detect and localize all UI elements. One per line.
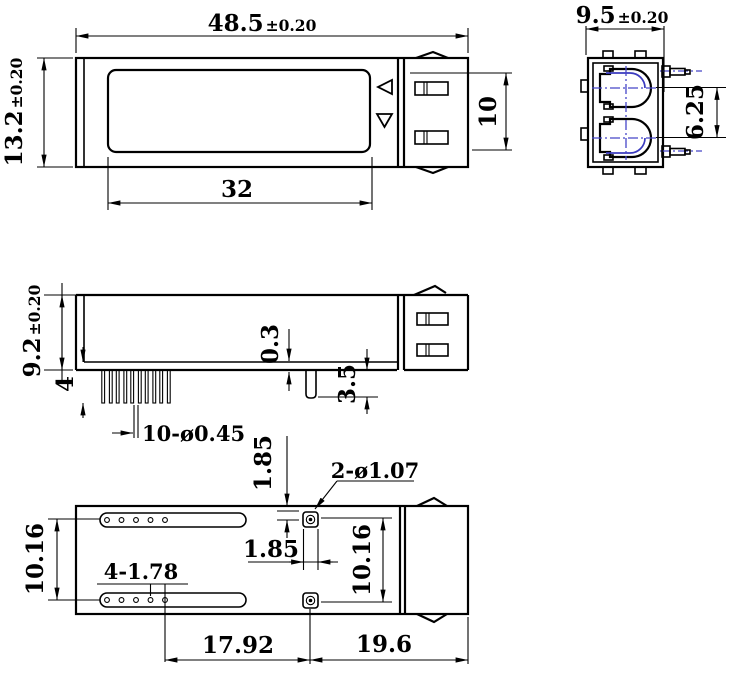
dim-slot-pitch: 10.16	[22, 519, 100, 600]
dim-standoff: 0.3	[257, 324, 289, 391]
top-slot-1	[415, 82, 448, 95]
dim-label-width-text: 32	[221, 176, 253, 203]
dim-overall-length: 48.5±0.20	[76, 10, 468, 53]
dim-overall-height: 13.2±0.20	[1, 57, 73, 167]
dim-connector-width-text: 10	[475, 96, 502, 128]
bottom-view: 10.16 4-1.78 2-ø1.07 1.85	[22, 435, 468, 664]
dim-pad-x: 17.92	[165, 609, 310, 664]
dim-pad-offset-h: 1.85	[243, 529, 338, 570]
dim-label-width: 32	[108, 157, 372, 210]
dim-slot-pitch-text: 10.16	[22, 523, 49, 595]
dim-pad-x-text: 17.92	[202, 632, 274, 659]
dim-connector-length: 19.6	[310, 617, 468, 664]
side-view: 9.2±0.20 4 10-ø0.45 0.3 3.5	[19, 283, 468, 446]
end-view: 9.5±0.20 6.25	[576, 2, 726, 174]
dim-port-pitch: 6.25	[656, 84, 726, 140]
side-slot-1	[417, 313, 448, 325]
bottom-latch-lower	[417, 614, 447, 622]
note-pins: 10-ø0.45	[112, 405, 245, 446]
top-view: 48.5±0.20 13.2±0.20 32 10	[1, 10, 512, 210]
bottom-slot-1	[100, 513, 246, 527]
dim-connector-width: 10	[410, 73, 512, 150]
dim-end-width-text: 9.5±0.20	[576, 2, 669, 29]
slot-1-holes	[105, 518, 168, 523]
pad-top	[303, 512, 318, 527]
dim-side-height: 9.2±0.20	[19, 283, 84, 382]
top-body-outline	[76, 58, 468, 167]
note-pads: 2-ø1.07	[315, 458, 419, 509]
bottom-latch-upper	[417, 498, 447, 506]
top-slot-2	[415, 131, 448, 144]
note-pads-text: 2-ø1.07	[331, 458, 419, 483]
dim-overall-length-text: 48.5±0.20	[208, 10, 317, 37]
dim-end-width: 9.5±0.20	[576, 2, 669, 92]
triangle-down-icon	[377, 114, 392, 127]
side-pins	[102, 370, 170, 403]
triangle-left-icon	[378, 80, 392, 94]
note-holes-text: 4-1.78	[104, 559, 178, 584]
top-label-area	[108, 70, 370, 152]
dim-pad-pitch-text: 10.16	[349, 524, 376, 596]
dim-post-height: 3.5	[318, 349, 378, 414]
dim-side-height-text: 9.2±0.20	[19, 284, 46, 377]
bottom-slot-2	[100, 593, 246, 607]
note-pins-text: 10-ø0.45	[142, 421, 245, 446]
drawing-canvas: 48.5±0.20 13.2±0.20 32 10	[0, 0, 744, 676]
side-slot-2	[417, 344, 448, 356]
dim-pad-offset-v-text: 1.85	[250, 435, 277, 491]
note-holes: 4-1.78	[97, 559, 188, 662]
dim-pin-length-text: 4	[52, 376, 79, 392]
dim-pin-length: 4	[52, 347, 83, 418]
dim-post-height-text: 3.5	[334, 364, 361, 404]
side-latch	[414, 286, 446, 295]
engineering-drawing: 48.5±0.20 13.2±0.20 32 10	[0, 0, 744, 676]
dim-port-pitch-text: 6.25	[682, 84, 709, 140]
dim-pad-offset-v: 1.85	[250, 435, 299, 538]
dim-overall-height-text: 13.2±0.20	[1, 57, 28, 166]
dim-pad-offset-h-text: 1.85	[243, 536, 299, 563]
dim-connector-length-text: 19.6	[356, 631, 412, 658]
side-locating-post	[306, 371, 316, 398]
dim-standoff-text: 0.3	[257, 324, 284, 364]
dim-pad-pitch: 10.16	[321, 518, 392, 602]
pad-bottom	[303, 593, 318, 608]
slot-2-holes	[105, 598, 168, 603]
